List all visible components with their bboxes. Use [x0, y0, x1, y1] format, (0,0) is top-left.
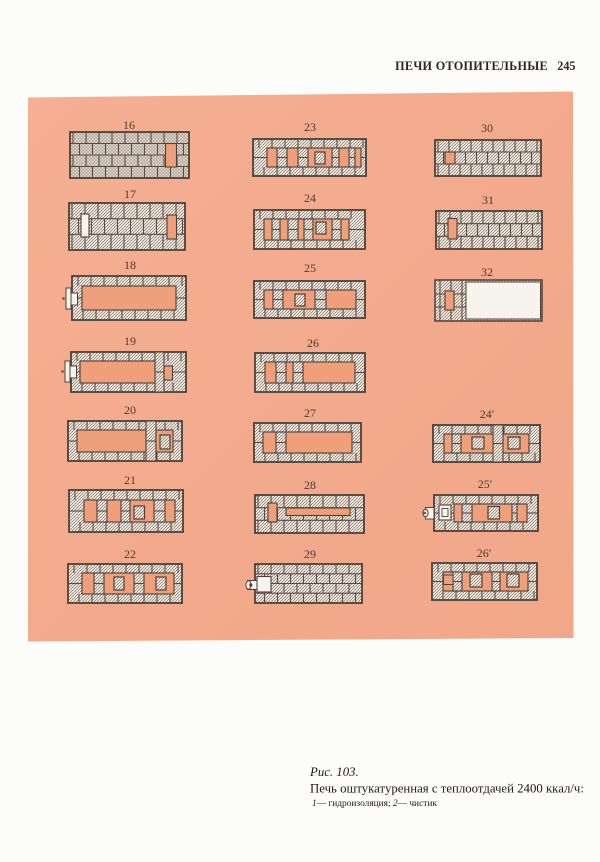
- svg-text:17: 17: [124, 187, 136, 201]
- svg-text:25′: 25′: [478, 477, 493, 491]
- svg-text:23: 23: [304, 120, 316, 134]
- svg-text:Печь оштукатуренная с теплоотд: Печь оштукатуренная с теплоотдачей 2400 …: [310, 782, 584, 796]
- svg-text:16: 16: [123, 118, 135, 132]
- svg-text:21: 21: [124, 473, 136, 487]
- svg-text:24: 24: [304, 191, 316, 205]
- svg-text:26: 26: [307, 336, 319, 350]
- svg-text:31: 31: [482, 193, 494, 207]
- svg-text:Рис. 103.: Рис. 103.: [309, 765, 359, 779]
- svg-text:22: 22: [124, 547, 136, 561]
- svg-text:27: 27: [304, 406, 316, 420]
- svg-text:245: 245: [557, 59, 575, 73]
- svg-text:ПЕЧИ ОТОПИТЕЛЬНЫЕ: ПЕЧИ ОТОПИТЕЛЬНЫЕ: [395, 59, 548, 73]
- svg-text:20: 20: [124, 403, 136, 417]
- svg-text:19: 19: [124, 334, 136, 348]
- svg-text:28: 28: [304, 478, 316, 492]
- svg-text:24′: 24′: [480, 407, 495, 421]
- svg-text:26′: 26′: [477, 546, 492, 560]
- svg-text:25: 25: [304, 261, 316, 275]
- svg-text:30: 30: [481, 121, 493, 135]
- svg-text:18: 18: [124, 258, 136, 272]
- svg-text:32: 32: [481, 265, 493, 279]
- svg-text:1— гидроизоляция; 2— чистик: 1— гидроизоляция; 2— чистик: [312, 799, 437, 809]
- svg-text:29: 29: [304, 547, 316, 561]
